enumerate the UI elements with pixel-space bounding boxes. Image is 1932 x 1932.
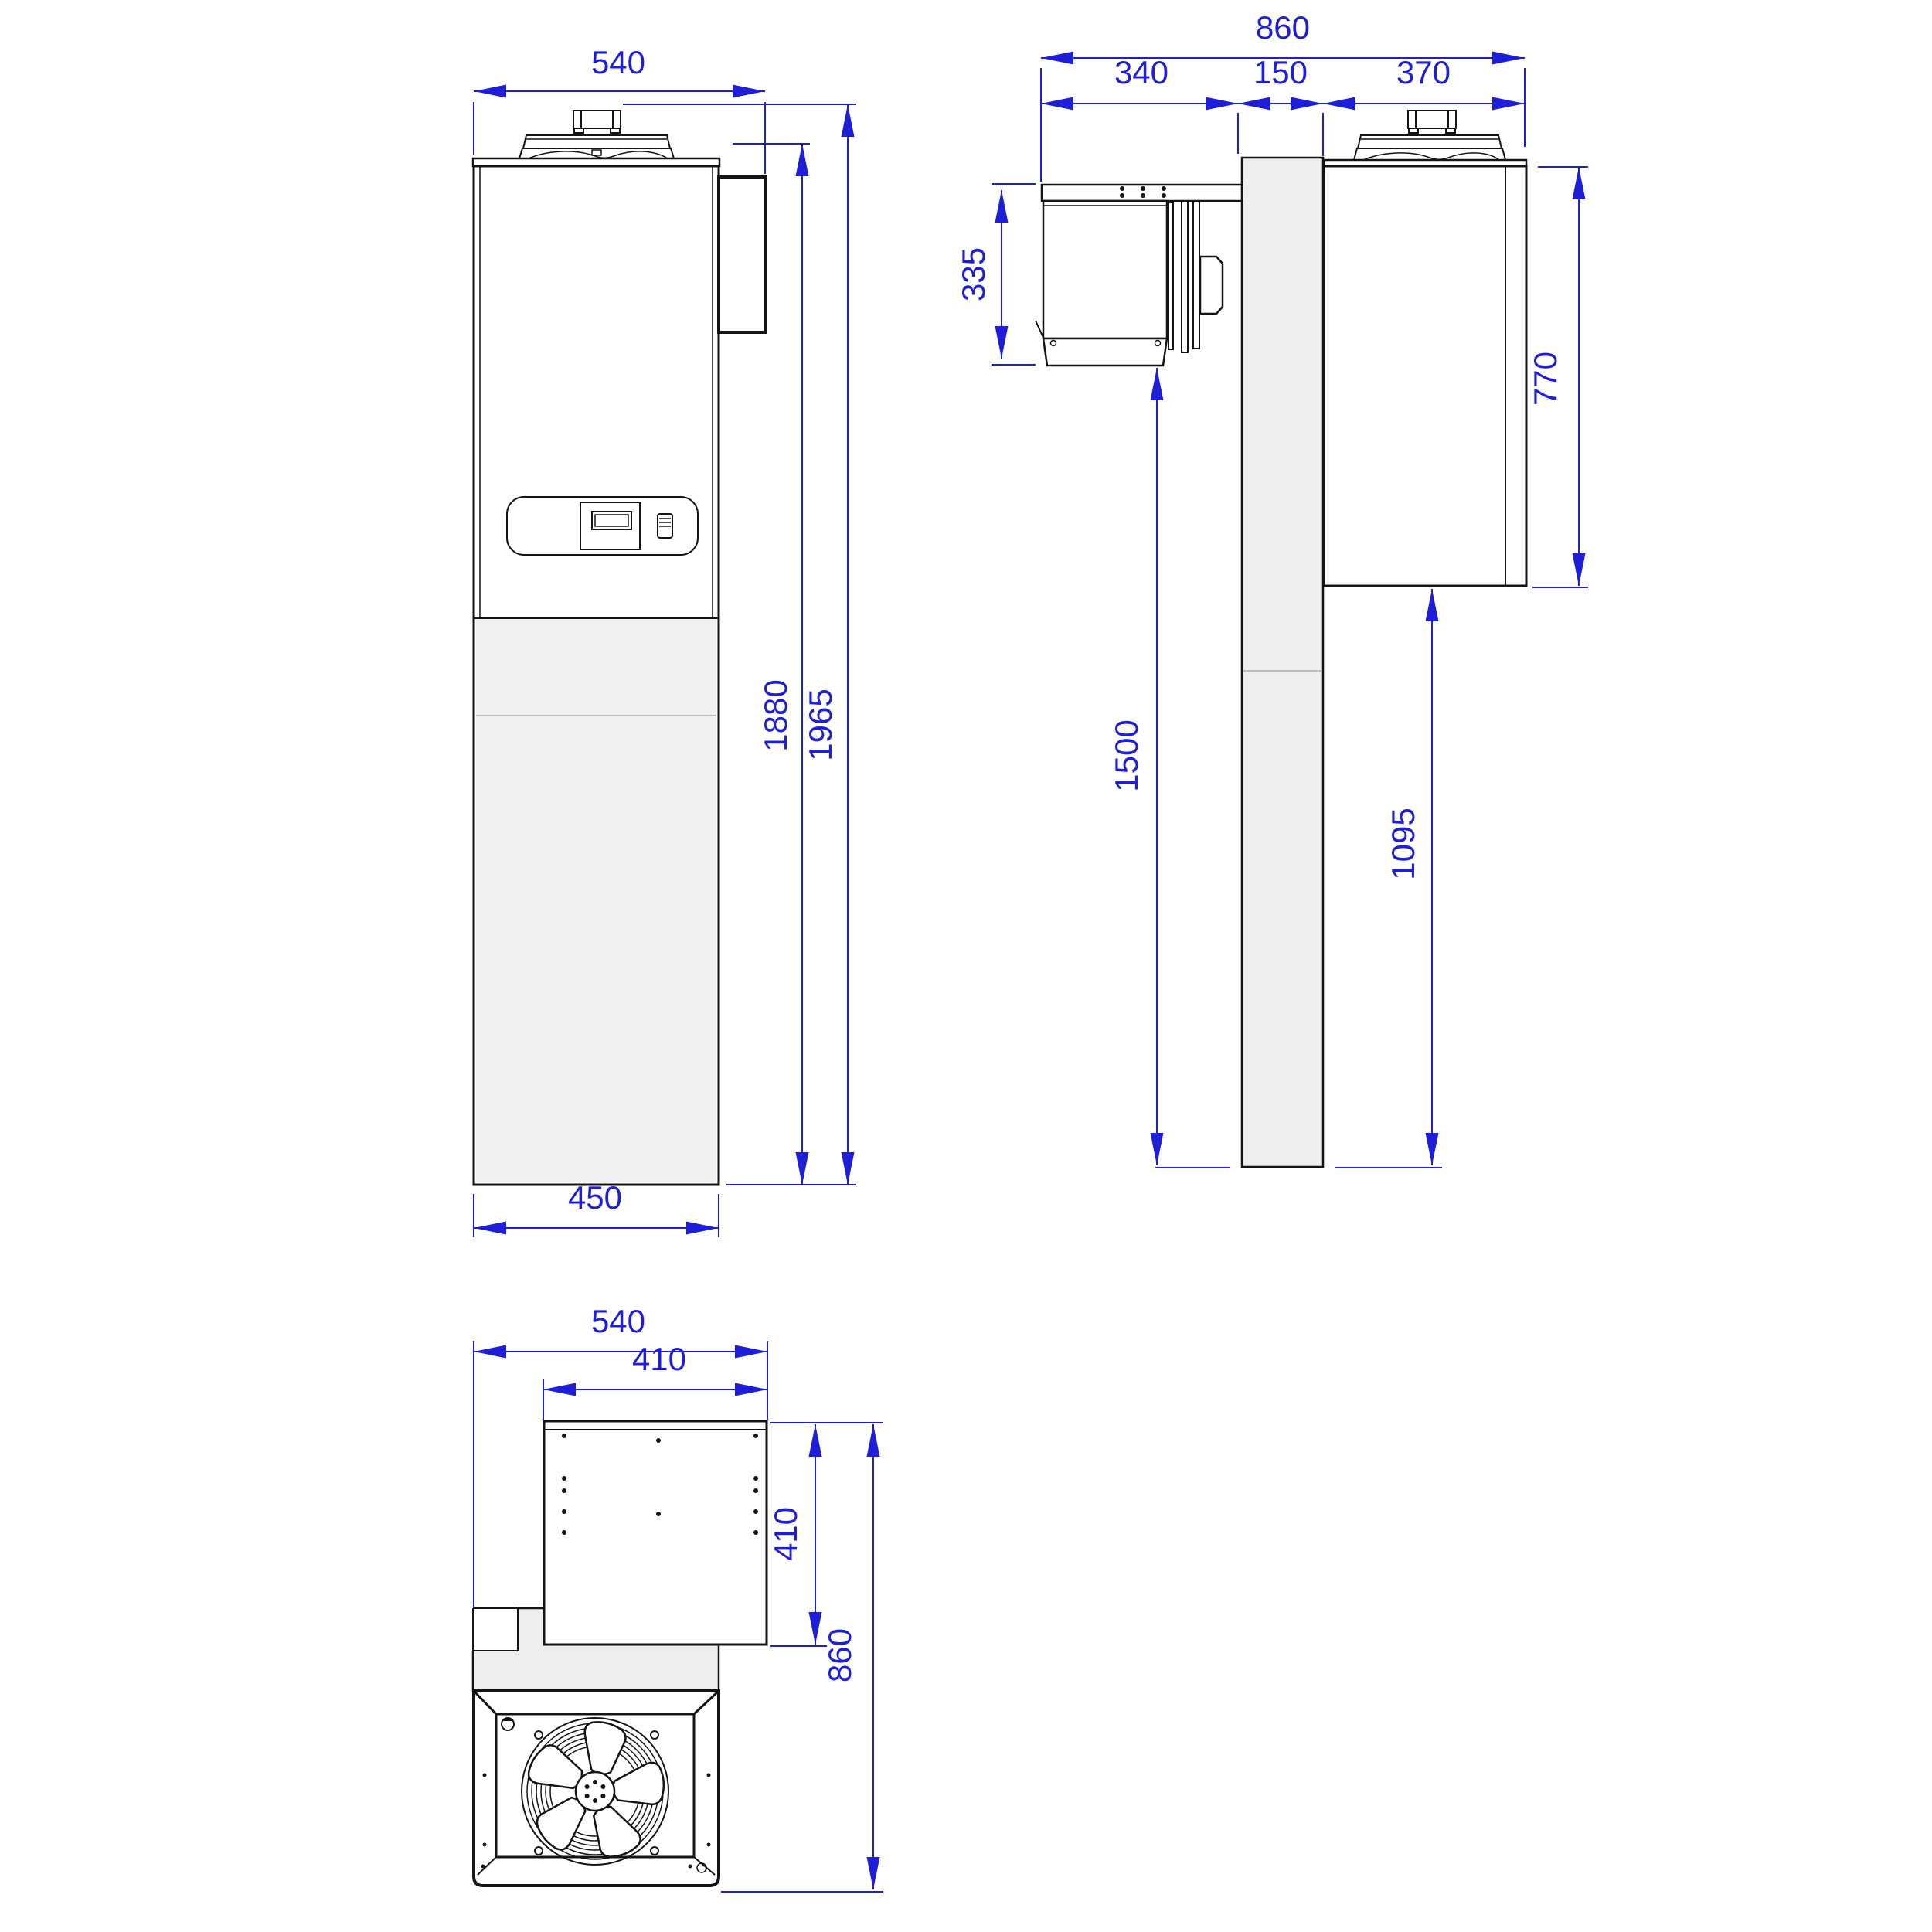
top-mounting-plate bbox=[544, 1421, 767, 1645]
dimension-side-cond-height: 770 bbox=[1527, 167, 1588, 587]
dimension-side-evap-clearance: 1500 bbox=[1108, 368, 1230, 1168]
dimension-front-width-bottom: 450 bbox=[474, 1179, 719, 1237]
front-view bbox=[473, 111, 765, 1185]
dimension-side-depth-evap: 340 bbox=[1041, 54, 1238, 154]
dimension-label: 410 bbox=[632, 1341, 686, 1377]
dimension-side-evap-height: 335 bbox=[955, 184, 1036, 365]
dimension-label: 540 bbox=[591, 44, 645, 80]
dimension-label: 150 bbox=[1253, 54, 1308, 90]
plug-fitting-side bbox=[1408, 111, 1456, 133]
dimension-label: 540 bbox=[591, 1303, 645, 1339]
evaporator-housing bbox=[1043, 201, 1167, 338]
condenser-housing bbox=[1324, 166, 1526, 586]
dimension-label: 860 bbox=[821, 1628, 858, 1682]
evaporator-unit bbox=[1036, 185, 1242, 366]
dimension-label: 335 bbox=[955, 247, 992, 301]
dimension-label: 370 bbox=[1396, 54, 1451, 90]
cabinet-body bbox=[474, 166, 719, 1185]
top-fan-cap bbox=[519, 135, 674, 158]
plug-fitting bbox=[573, 111, 621, 133]
top-view bbox=[471, 1421, 767, 1886]
dimension-front-height-body: 1880 bbox=[733, 144, 810, 1185]
dimension-label: 450 bbox=[568, 1179, 622, 1216]
side-junction-box bbox=[719, 177, 765, 332]
evaporator-drip-tray bbox=[1043, 338, 1167, 366]
wall-panel bbox=[1242, 158, 1323, 1167]
dimension-side-wall-thickness: 150 bbox=[1238, 54, 1323, 156]
condensing-unit bbox=[1324, 111, 1526, 586]
dimension-side-cond-clearance: 1095 bbox=[1335, 589, 1442, 1168]
technical-drawing-canvas: 5401880196545086034015037033577015001095… bbox=[0, 0, 1932, 1932]
dimension-top-plate-depth: 410 bbox=[767, 1423, 883, 1646]
dimension-top-plate-width: 410 bbox=[543, 1341, 767, 1420]
dimension-label: 1965 bbox=[802, 689, 838, 760]
dimension-label: 1500 bbox=[1108, 719, 1145, 791]
monoblock-dimension-drawing: 5401880196545086034015037033577015001095… bbox=[0, 0, 1932, 1932]
dimension-label: 1095 bbox=[1385, 808, 1421, 879]
fan-icon bbox=[522, 1718, 668, 1865]
dimension-label: 860 bbox=[1256, 9, 1310, 46]
evaporator-motor bbox=[1200, 257, 1223, 314]
dimension-label: 340 bbox=[1114, 54, 1168, 90]
top-fan-cap-side bbox=[1354, 135, 1505, 160]
cabinet-lower-panel bbox=[476, 619, 716, 1182]
side-view bbox=[1036, 111, 1526, 1167]
dimension-label: 770 bbox=[1527, 352, 1563, 406]
fan-hub bbox=[576, 1772, 614, 1811]
fan-shroud bbox=[474, 1691, 719, 1886]
dimension-label: 1880 bbox=[757, 679, 794, 751]
dimension-label: 410 bbox=[767, 1507, 804, 1561]
